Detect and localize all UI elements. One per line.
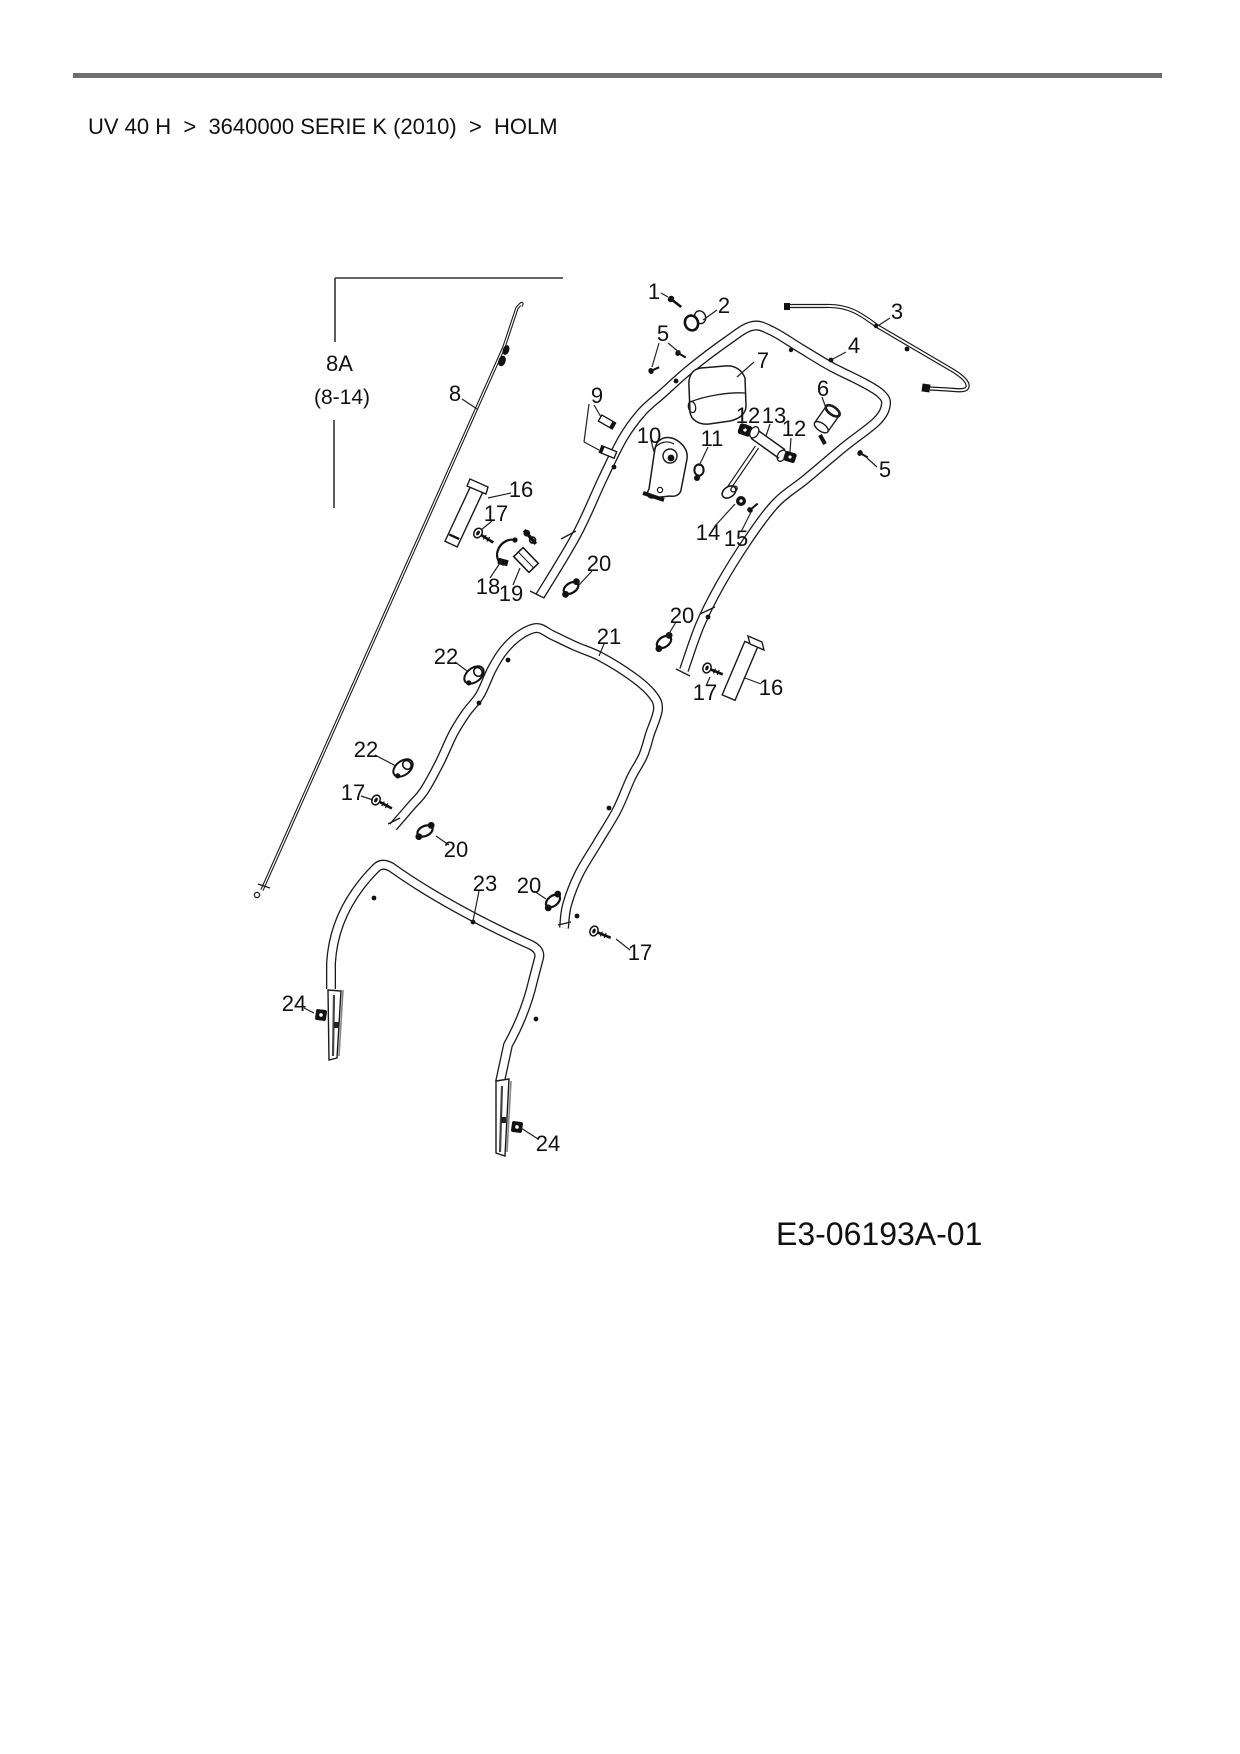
svg-text:2: 2	[718, 293, 730, 318]
svg-text:17: 17	[341, 780, 365, 805]
svg-text:9: 9	[591, 383, 603, 408]
svg-text:19: 19	[499, 581, 523, 606]
svg-text:20: 20	[587, 551, 611, 576]
svg-text:12: 12	[736, 403, 760, 428]
svg-text:17: 17	[693, 680, 717, 705]
svg-text:8A: 8A	[326, 351, 353, 376]
svg-text:20: 20	[670, 603, 694, 628]
svg-text:14: 14	[696, 520, 720, 545]
svg-text:17: 17	[628, 940, 652, 965]
svg-text:4: 4	[848, 333, 860, 358]
svg-text:20: 20	[517, 873, 541, 898]
svg-text:11: 11	[701, 426, 724, 451]
svg-text:12: 12	[782, 416, 806, 441]
svg-text:18: 18	[476, 574, 500, 599]
svg-text:21: 21	[597, 624, 621, 649]
svg-text:22: 22	[354, 737, 378, 762]
svg-text:3: 3	[891, 299, 903, 324]
svg-text:10: 10	[637, 423, 661, 448]
svg-text:23: 23	[473, 871, 497, 896]
svg-text:5: 5	[879, 457, 891, 482]
svg-text:15: 15	[724, 526, 748, 551]
svg-text:22: 22	[434, 644, 458, 669]
svg-text:7: 7	[757, 348, 769, 373]
svg-text:24: 24	[282, 991, 306, 1016]
svg-text:16: 16	[759, 675, 783, 700]
svg-text:6: 6	[817, 376, 829, 401]
svg-text:8: 8	[449, 381, 461, 406]
svg-text:1: 1	[648, 279, 660, 304]
svg-text:24: 24	[536, 1131, 560, 1156]
svg-text:5: 5	[657, 321, 669, 346]
svg-text:17: 17	[484, 501, 508, 526]
svg-text:20: 20	[444, 837, 468, 862]
svg-text:(8-14): (8-14)	[314, 386, 370, 409]
svg-text:16: 16	[509, 477, 533, 502]
